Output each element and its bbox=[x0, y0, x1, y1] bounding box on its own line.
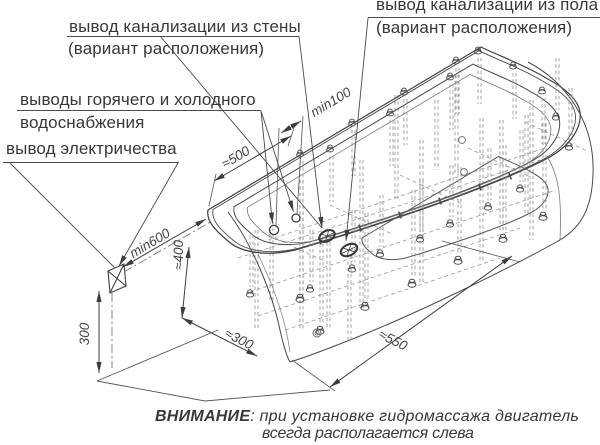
svg-text:min100: min100 bbox=[308, 84, 354, 120]
svg-text:≈300: ≈300 bbox=[222, 326, 256, 353]
svg-text:≈500: ≈500 bbox=[219, 143, 253, 171]
svg-text:min600: min600 bbox=[127, 225, 173, 261]
svg-text:≈400: ≈400 bbox=[171, 240, 186, 270]
svg-text:300: 300 bbox=[77, 322, 92, 345]
